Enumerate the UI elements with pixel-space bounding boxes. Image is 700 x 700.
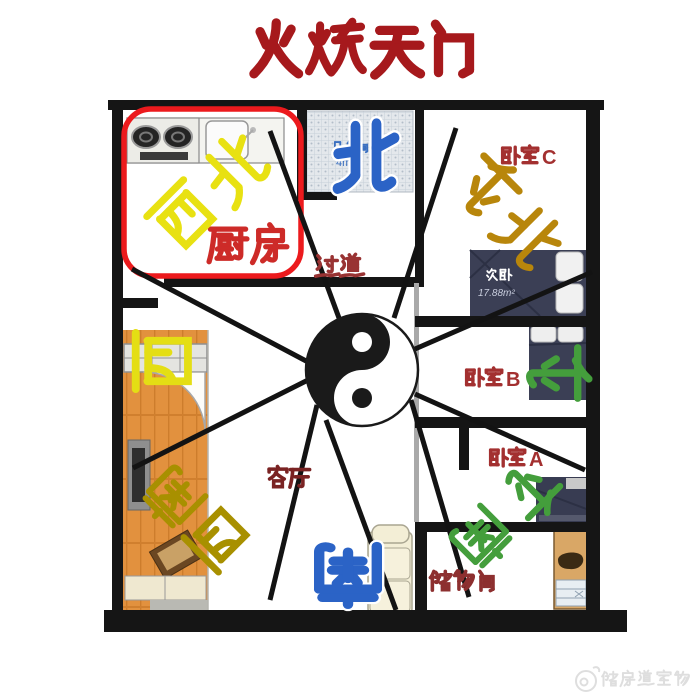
svg-text:C: C [542, 147, 556, 169]
svg-text:B: B [506, 369, 520, 391]
svg-text:A: A [529, 449, 543, 471]
svg-text:17.88m²: 17.88m² [478, 288, 515, 299]
